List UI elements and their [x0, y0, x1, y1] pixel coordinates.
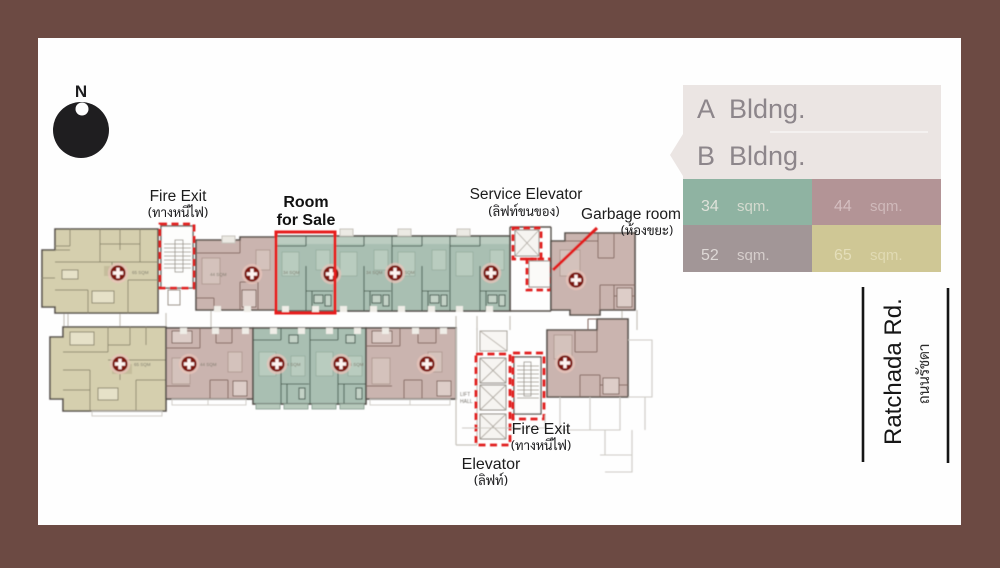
svg-text:N: N [75, 82, 87, 101]
svg-text:Bldng.: Bldng. [729, 94, 806, 124]
svg-text:34 SQM: 34 SQM [366, 270, 383, 275]
svg-text:sqm.: sqm. [870, 247, 903, 264]
svg-text:34: 34 [701, 198, 719, 215]
svg-text:Room: Room [283, 194, 328, 211]
svg-text:Ratchada Rd.: Ratchada Rd. [880, 298, 907, 445]
svg-text:44 SQM: 44 SQM [200, 362, 217, 367]
svg-text:Fire Exit: Fire Exit [150, 188, 208, 205]
svg-text:34 SQM: 34 SQM [283, 270, 300, 275]
svg-text:52: 52 [701, 247, 719, 264]
svg-text:sqm.: sqm. [737, 198, 770, 215]
svg-text:A: A [697, 94, 715, 124]
svg-text:B: B [697, 141, 715, 171]
svg-text:Bldng.: Bldng. [729, 141, 806, 171]
svg-text:Garbage room: Garbage room [581, 206, 681, 223]
svg-text:Service Elevator: Service Elevator [470, 186, 583, 203]
svg-text:HALL: HALL [460, 399, 473, 405]
svg-text:65 SQM: 65 SQM [132, 270, 149, 275]
svg-text:65 SQM: 65 SQM [134, 362, 151, 367]
svg-text:Fire Exit: Fire Exit [512, 421, 571, 438]
svg-text:for Sale: for Sale [277, 212, 336, 229]
svg-text:sqm.: sqm. [870, 198, 903, 215]
svg-text:LIFT: LIFT [460, 392, 470, 398]
svg-text:44 SQM: 44 SQM [210, 272, 227, 277]
svg-text:sqm.: sqm. [737, 247, 770, 264]
svg-text:44: 44 [834, 198, 852, 215]
svg-text:65: 65 [834, 247, 852, 264]
svg-text:Elevator: Elevator [462, 456, 521, 473]
